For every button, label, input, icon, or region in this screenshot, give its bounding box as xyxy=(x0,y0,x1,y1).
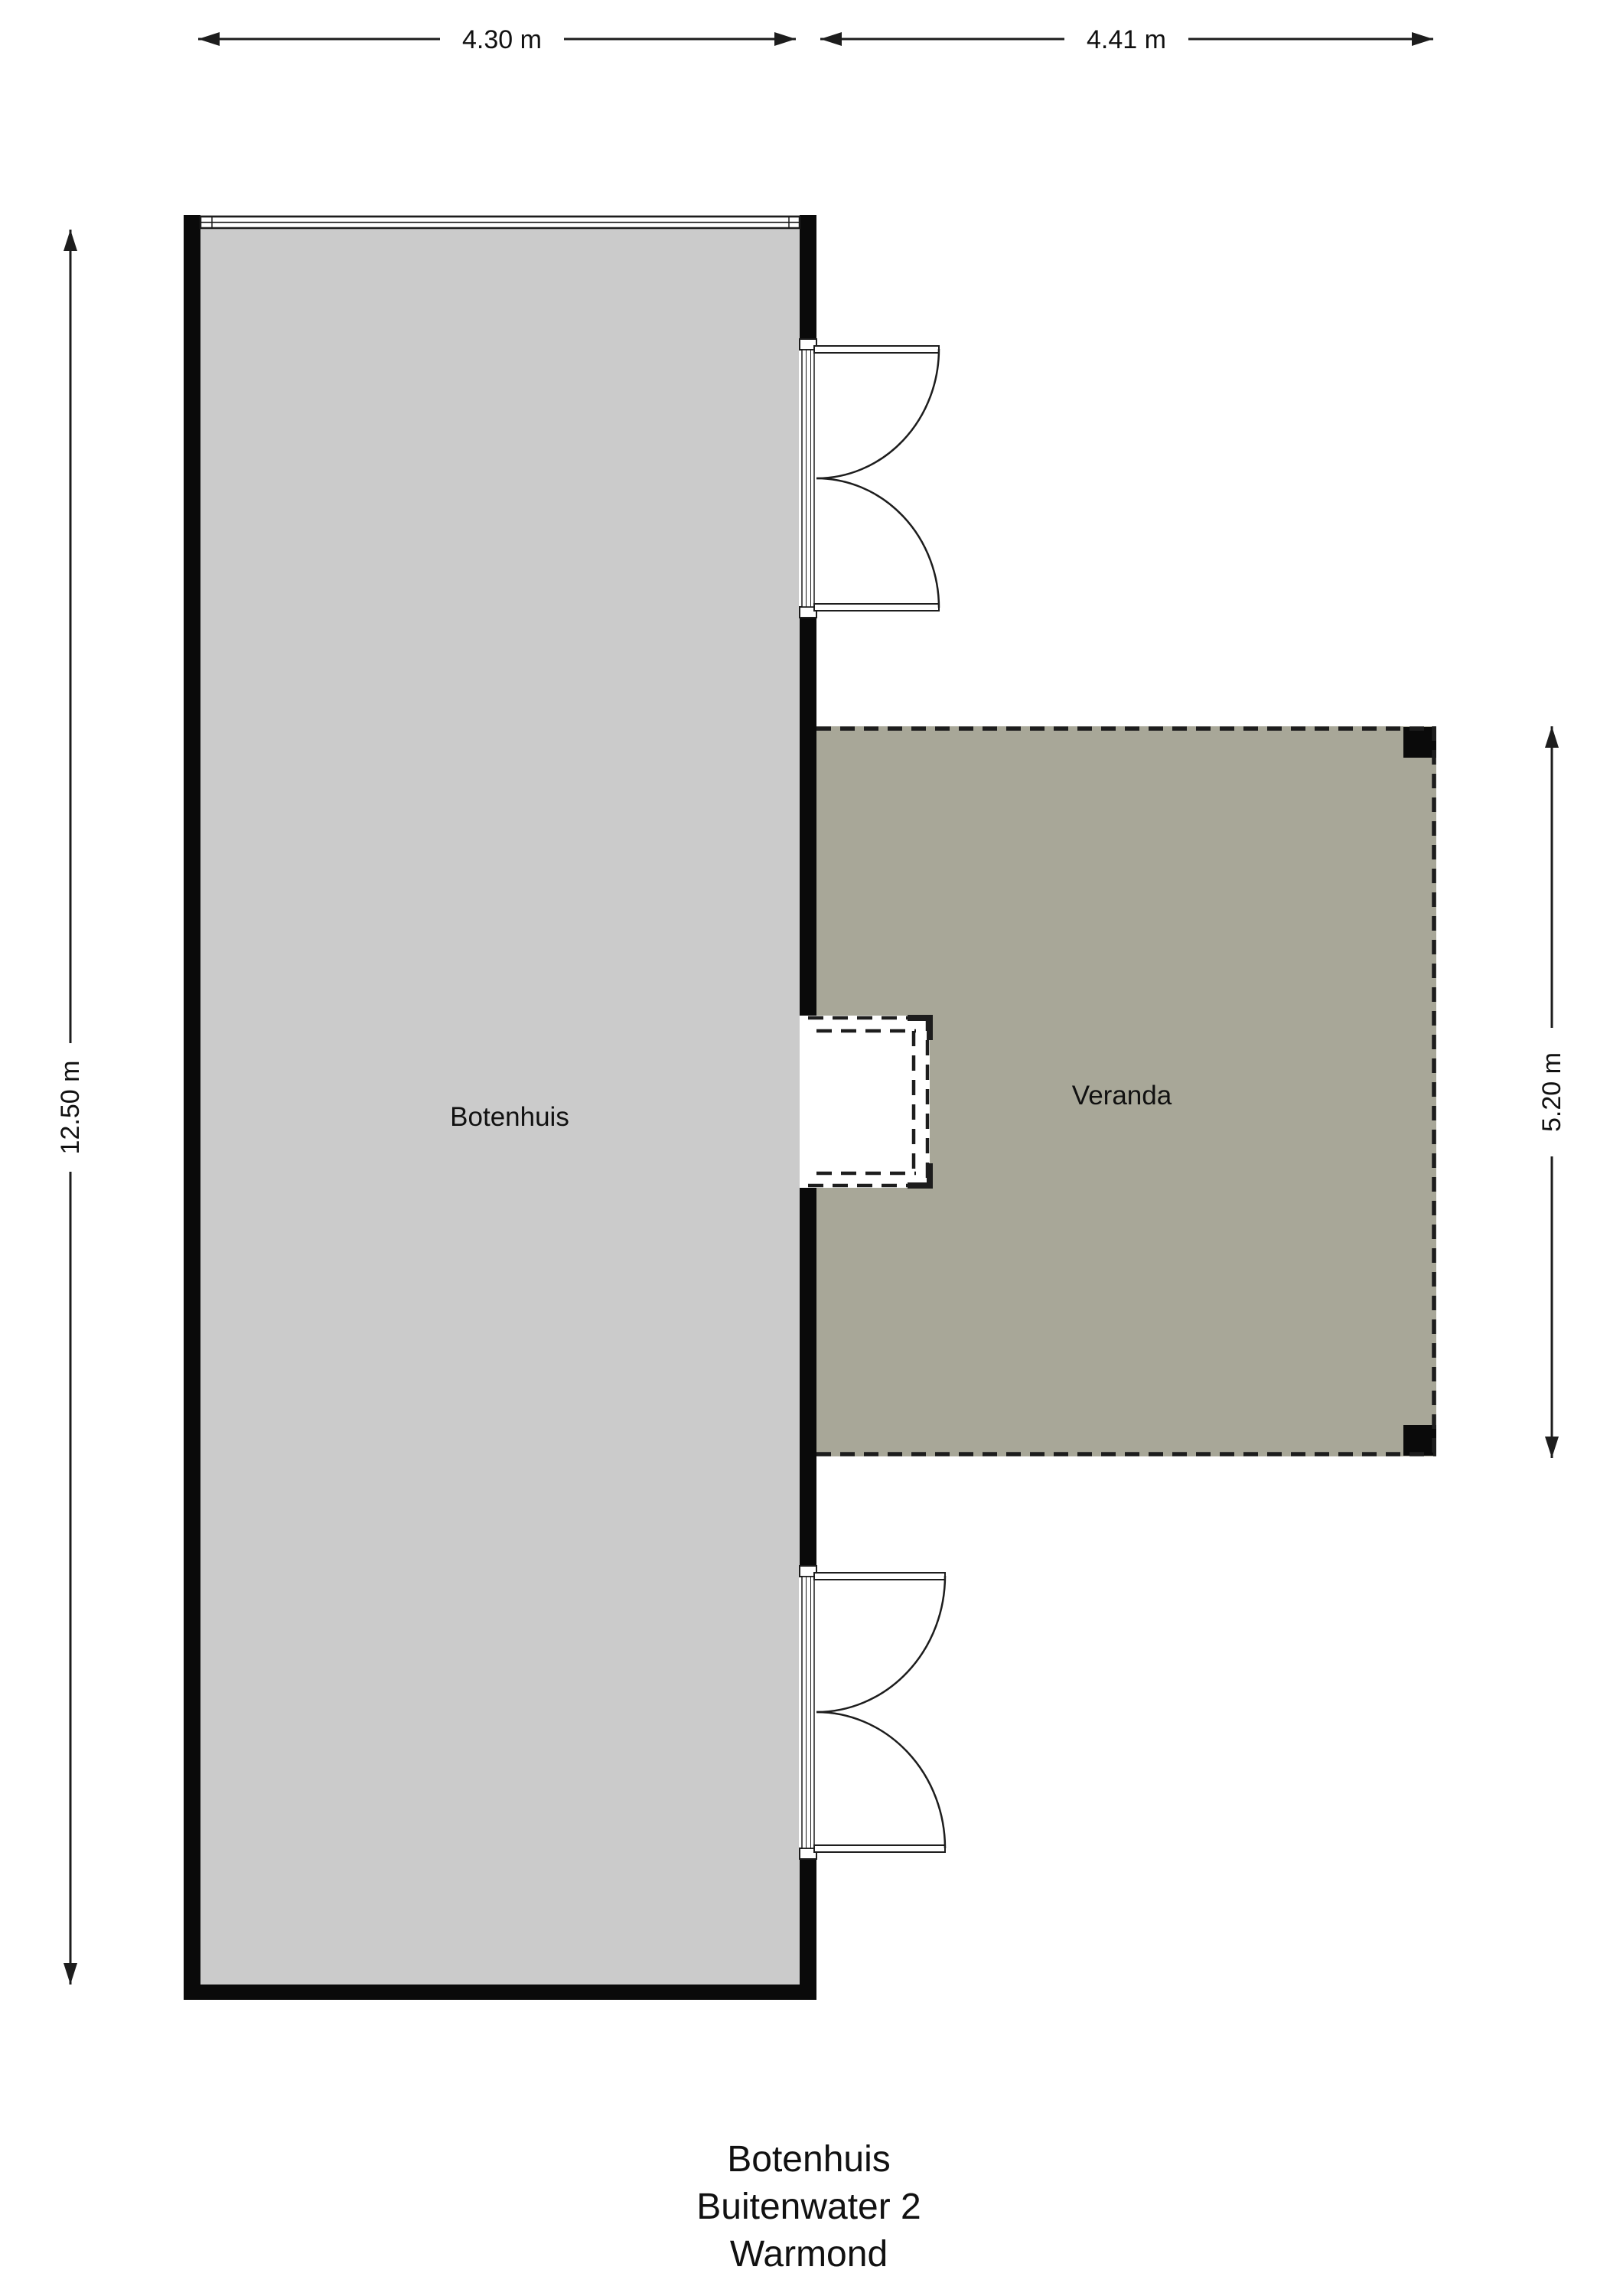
dim-label-boathouse-width: 4.30 m xyxy=(462,25,542,54)
door-upper-leaf-top xyxy=(814,346,939,353)
door-upper-threshold xyxy=(802,350,814,607)
title-line-2: Buitenwater 2 xyxy=(696,2187,921,2227)
window-band xyxy=(200,217,800,228)
dim-arrowhead-right-icon xyxy=(774,32,796,46)
wall-left xyxy=(184,215,200,2000)
room-label-boathouse: Botenhuis xyxy=(450,1102,569,1132)
room-label-veranda: Veranda xyxy=(1072,1081,1172,1110)
wall-right-segment-mid-lower xyxy=(800,1188,816,1566)
double-door-upper xyxy=(799,339,939,618)
passage-box xyxy=(800,1016,930,1188)
double-door-lower xyxy=(799,1566,945,1859)
floor-plan-canvas: 4.30 m 4.41 m 12.50 m 5.20 m Botenhuis V… xyxy=(0,0,1623,2296)
dim-arrowhead-right-icon xyxy=(1412,32,1433,46)
door-lower-swing-top xyxy=(816,1576,945,1712)
wall-right-segment-bottom xyxy=(800,1859,816,2000)
dim-arrowhead-up-icon xyxy=(64,230,77,251)
title-line-1: Botenhuis xyxy=(727,2139,891,2180)
door-upper-swing-top xyxy=(816,349,939,478)
door-lower-leaf-bottom xyxy=(814,1845,945,1852)
door-lower-leaf-top xyxy=(814,1573,945,1580)
door-lower-swing-bottom xyxy=(816,1712,945,1848)
veranda-post-top-right xyxy=(1403,727,1436,758)
dim-arrowhead-down-icon xyxy=(1545,1437,1559,1458)
dim-arrowhead-left-icon xyxy=(820,32,842,46)
dim-label-boathouse-length: 12.50 m xyxy=(56,1061,85,1155)
door-lower-threshold xyxy=(802,1577,814,1848)
dim-label-veranda-length: 5.20 m xyxy=(1537,1052,1566,1132)
wall-right-segment-top xyxy=(800,215,816,339)
dim-label-veranda-width: 4.41 m xyxy=(1087,25,1166,54)
veranda-post-bottom-right xyxy=(1403,1425,1436,1456)
wall-bottom xyxy=(184,1985,816,2000)
door-upper-swing-bottom xyxy=(816,478,939,608)
wall-right-segment-mid-upper xyxy=(800,618,816,1016)
dim-arrowhead-down-icon xyxy=(64,1963,77,1985)
title-line-3: Warmond xyxy=(730,2234,888,2275)
dim-arrowhead-left-icon xyxy=(198,32,220,46)
floor-plan-page: 4.30 m 4.41 m 12.50 m 5.20 m Botenhuis V… xyxy=(0,0,1623,2296)
door-upper-leaf-bottom xyxy=(814,604,939,611)
passage-box-fill xyxy=(800,1016,930,1188)
dim-arrowhead-up-icon xyxy=(1545,726,1559,748)
